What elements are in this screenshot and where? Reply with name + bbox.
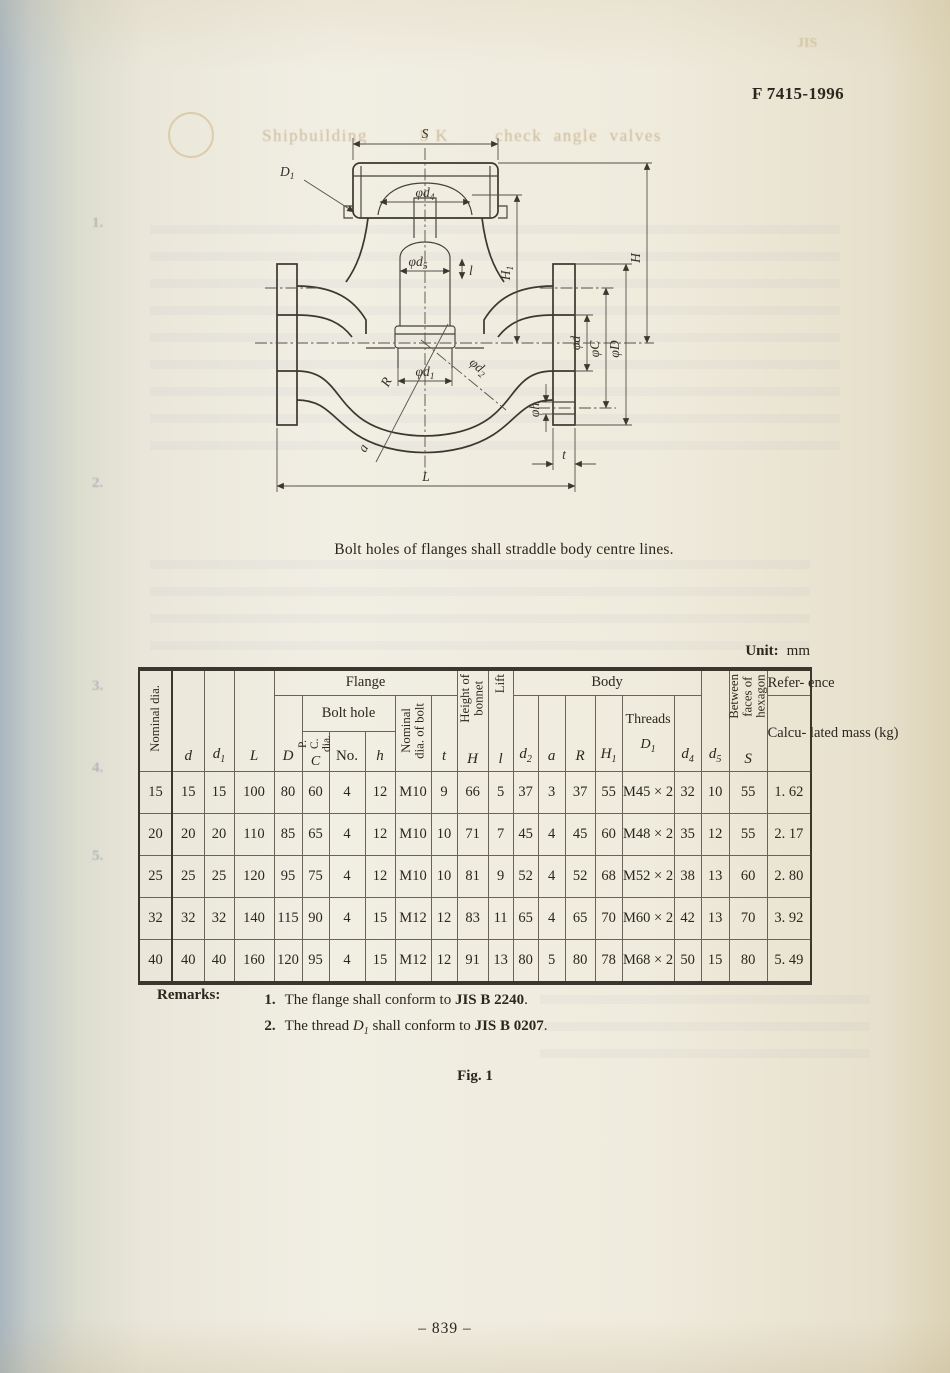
table-cell: 37 <box>565 772 595 814</box>
table-cell: 120 <box>274 940 302 984</box>
group-header-flange: Flange <box>274 669 457 695</box>
table-body: 1515151008060412M1096653733755M45 × 2321… <box>139 772 811 984</box>
table-cell: 65 <box>302 814 329 856</box>
table-cell: 75 <box>302 856 329 898</box>
table-cell: 12 <box>701 814 729 856</box>
table-cell: 40 <box>139 940 172 984</box>
table-cell: 12 <box>365 856 395 898</box>
table-cell: M10 <box>395 856 431 898</box>
table-cell: 80 <box>274 772 302 814</box>
col-header-d1: d1 <box>204 669 234 772</box>
table-cell: 2. 80 <box>767 856 811 898</box>
table-cell: 25 <box>204 856 234 898</box>
table-cell: 80 <box>513 940 538 984</box>
dim-label-lift: l <box>469 263 473 278</box>
table-cell: 13 <box>701 856 729 898</box>
col-header-d2: d2 <box>513 695 538 772</box>
table-cell: 42 <box>674 898 701 940</box>
table-cell: 4 <box>538 856 565 898</box>
table-cell: 4 <box>329 814 365 856</box>
table-cell: 71 <box>457 814 488 856</box>
ghost-margin-number: 1. <box>92 215 103 232</box>
table-cell: 60 <box>729 856 767 898</box>
remarks-block: Remarks: 1.The flange shall conform to J… <box>157 987 548 1045</box>
table-cell: 15 <box>365 898 395 940</box>
col-header-h: h <box>365 732 395 772</box>
table-cell: 81 <box>457 856 488 898</box>
table-cell: 65 <box>565 898 595 940</box>
table-cell: 45 <box>513 814 538 856</box>
table-cell: 95 <box>274 856 302 898</box>
table-cell: 83 <box>457 898 488 940</box>
table-cell: 160 <box>234 940 274 984</box>
table-cell: M45 × 2 <box>622 772 674 814</box>
col-header-H1: H1 <box>595 695 622 772</box>
ghost-jis-mark: JIS <box>797 36 817 52</box>
table-cell: 80 <box>729 940 767 984</box>
dimension-labels: S D1 φd4 φd5 l φd1 φd2 R a H1 H φd φC φD… <box>279 126 643 484</box>
dim-label-H: H <box>628 252 643 264</box>
table-cell: 140 <box>234 898 274 940</box>
table-header: Nominal dia. d d1 L Flange Height of bon… <box>139 669 811 772</box>
valve-section-figure: S D1 φd4 φd5 l φd1 φd2 R a H1 H φd φC φD… <box>240 118 670 523</box>
table-cell: 80 <box>565 940 595 984</box>
table-cell: 68 <box>595 856 622 898</box>
col-header-L: L <box>234 669 274 772</box>
table-cell: 25 <box>172 856 204 898</box>
col-header-d5: d5 <box>701 669 729 772</box>
table-row: 1515151008060412M1096653733755M45 × 2321… <box>139 772 811 814</box>
table-cell: 32 <box>139 898 172 940</box>
unit-value: mm <box>787 643 810 659</box>
table-cell: 4 <box>329 856 365 898</box>
table-cell: 3 <box>538 772 565 814</box>
col-header-threads-D1: ThreadsD1 <box>622 695 674 772</box>
table-cell: 11 <box>488 898 513 940</box>
table-cell: 20 <box>204 814 234 856</box>
table-cell: 5. 49 <box>767 940 811 984</box>
group-header-bolt-hole: Bolt hole <box>302 695 395 732</box>
pc-dia-rotated-label: P. C. dia. <box>298 734 334 754</box>
table-cell: 2. 17 <box>767 814 811 856</box>
table-cell: 15 <box>204 772 234 814</box>
hexagon-rotated-label: Between faces of hexagon <box>728 674 768 719</box>
col-header-t: t <box>431 695 457 772</box>
table-cell: 50 <box>674 940 701 984</box>
table-cell: 13 <box>701 898 729 940</box>
table-cell: 95 <box>302 940 329 984</box>
table-cell: 37 <box>513 772 538 814</box>
table-cell: 7 <box>488 814 513 856</box>
table-cell: 12 <box>365 814 395 856</box>
col-header-bolt-nominal-dia: Nominal dia. of bolt <box>395 695 431 772</box>
table-row: 2020201108565412M10107174544560M48 × 235… <box>139 814 811 856</box>
document-code: F 7415-1996 <box>752 84 844 104</box>
table-cell: 15 <box>701 940 729 984</box>
table-cell: 12 <box>365 772 395 814</box>
table-cell: M60 × 2 <box>622 898 674 940</box>
col-header-nominal-dia: Nominal dia. <box>139 669 172 772</box>
table-cell: 55 <box>595 772 622 814</box>
table-cell: 55 <box>729 814 767 856</box>
dim-label-phi-C: φC <box>587 340 602 357</box>
table-cell: 65 <box>513 898 538 940</box>
nominal-dia-rotated-label: Nominal dia. <box>149 685 162 752</box>
figure-caption: Bolt holes of flanges shall straddle bod… <box>0 541 950 559</box>
table-cell: 60 <box>302 772 329 814</box>
ghost-stamp-circle <box>168 112 214 158</box>
dim-label-t: t <box>562 447 567 462</box>
figure-number: Fig. 1 <box>0 1068 950 1085</box>
table-cell: 12 <box>431 940 457 984</box>
table-cell: 91 <box>457 940 488 984</box>
table-cell: M48 × 2 <box>622 814 674 856</box>
table-cell: 55 <box>729 772 767 814</box>
dimension-lines <box>277 138 652 492</box>
table-cell: 110 <box>234 814 274 856</box>
table-cell: 3. 92 <box>767 898 811 940</box>
table-cell: 15 <box>365 940 395 984</box>
table-cell: 52 <box>565 856 595 898</box>
col-header-height-of-bonnet: Height of bonnetH <box>457 669 488 772</box>
table-cell: 5 <box>538 940 565 984</box>
dim-label-H1: H1 <box>498 266 516 282</box>
threads-label: Threads <box>626 712 671 728</box>
table-cell: 78 <box>595 940 622 984</box>
col-header-a: a <box>538 695 565 772</box>
table-cell: 1. 62 <box>767 772 811 814</box>
col-header-reference: Refer- ence <box>767 669 811 695</box>
dim-label-R: R <box>377 374 395 390</box>
height-of-bonnet-rotated-label: Height of bonnet <box>459 674 486 723</box>
table-cell: 100 <box>234 772 274 814</box>
ghost-margin-number: 4. <box>92 760 103 777</box>
table-cell: 15 <box>139 772 172 814</box>
centerlines <box>255 148 654 472</box>
table-cell: 15 <box>172 772 204 814</box>
table-cell: 4 <box>329 898 365 940</box>
table-cell: 120 <box>234 856 274 898</box>
table-cell: 9 <box>488 856 513 898</box>
page-number: – 839 – <box>0 1320 890 1338</box>
dim-label-a: a <box>355 441 372 454</box>
col-header-d: d <box>172 669 204 772</box>
table-cell: M52 × 2 <box>622 856 674 898</box>
col-header-no: No. <box>329 732 365 772</box>
table-cell: M10 <box>395 772 431 814</box>
col-header-R: R <box>565 695 595 772</box>
table-cell: M12 <box>395 940 431 984</box>
dim-label-L: L <box>421 469 430 484</box>
table-cell: 40 <box>204 940 234 984</box>
dimension-table: Nominal dia. d d1 L Flange Height of bon… <box>138 667 812 985</box>
table-cell: 35 <box>674 814 701 856</box>
table-cell: 52 <box>513 856 538 898</box>
remark-item-1: 1.The flange shall conform to JIS B 2240… <box>264 987 547 1013</box>
ghost-bleedthrough <box>540 995 870 1065</box>
scanned-standard-page: { "page": { "doc_code": "F 7415-1996", "… <box>0 0 950 1373</box>
table-cell: 60 <box>595 814 622 856</box>
col-header-lift: Liftl <box>488 669 513 772</box>
col-header-between-faces-of-hexagon: Between faces of hexagonS <box>729 669 767 772</box>
table-row: 2525251209575412M10108195245268M52 × 238… <box>139 856 811 898</box>
table-cell: 4 <box>329 772 365 814</box>
dim-label-phi-d: φd <box>568 336 583 350</box>
col-header-d4: d4 <box>674 695 701 772</box>
lift-rotated-label: Lift <box>494 674 507 693</box>
table-cell: 4 <box>538 814 565 856</box>
unit-label: Unit:mm <box>680 643 810 660</box>
col-header-pc-dia-C: P. C. dia.C <box>302 732 329 772</box>
table-cell: 4 <box>329 940 365 984</box>
table-cell: M68 × 2 <box>622 940 674 984</box>
col-header-calculated-mass: Calcu- lated mass (kg) <box>767 695 811 772</box>
table-cell: M12 <box>395 898 431 940</box>
table-cell: 115 <box>274 898 302 940</box>
bolt-dia-rotated-label: Nominal dia. of bolt <box>400 703 427 759</box>
unit-word: Unit: <box>745 643 778 659</box>
table-cell: 9 <box>431 772 457 814</box>
ghost-margin-number: 5. <box>92 848 103 865</box>
dim-label-phi-h: φh <box>527 403 542 417</box>
ghost-margin-number: 3. <box>92 678 103 695</box>
table-cell: 5 <box>488 772 513 814</box>
table-cell: 32 <box>172 898 204 940</box>
table-cell: 12 <box>431 898 457 940</box>
table-cell: 10 <box>431 856 457 898</box>
valve-internals <box>344 166 575 414</box>
table-cell: 90 <box>302 898 329 940</box>
dim-label-D1: D1 <box>279 164 295 182</box>
table-cell: 70 <box>595 898 622 940</box>
table-row: 32323214011590415M121283116546570M60 × 2… <box>139 898 811 940</box>
remarks-label: Remarks: <box>157 987 220 1004</box>
table-cell: 25 <box>139 856 172 898</box>
table-cell: 10 <box>701 772 729 814</box>
dim-label-d2: φd2 <box>465 355 491 381</box>
group-header-body: Body <box>513 669 701 695</box>
table-cell: 38 <box>674 856 701 898</box>
table-cell: 40 <box>172 940 204 984</box>
table-cell: 70 <box>729 898 767 940</box>
table-cell: 4 <box>538 898 565 940</box>
table-cell: 20 <box>139 814 172 856</box>
table-cell: M10 <box>395 814 431 856</box>
table-cell: 20 <box>172 814 204 856</box>
table-cell: 66 <box>457 772 488 814</box>
table-cell: 32 <box>204 898 234 940</box>
dim-label-phi-D: φD <box>607 340 622 357</box>
ghost-margin-number: 2. <box>92 475 103 492</box>
table-cell: 13 <box>488 940 513 984</box>
dim-label-S: S <box>422 126 429 141</box>
table-cell: 85 <box>274 814 302 856</box>
table-cell: 32 <box>674 772 701 814</box>
table-cell: 45 <box>565 814 595 856</box>
remark-item-2: 2.The thread D1 shall conform to JIS B 0… <box>264 1013 547 1045</box>
table-cell: 10 <box>431 814 457 856</box>
table-row: 40404016012095415M121291138058078M68 × 2… <box>139 940 811 984</box>
